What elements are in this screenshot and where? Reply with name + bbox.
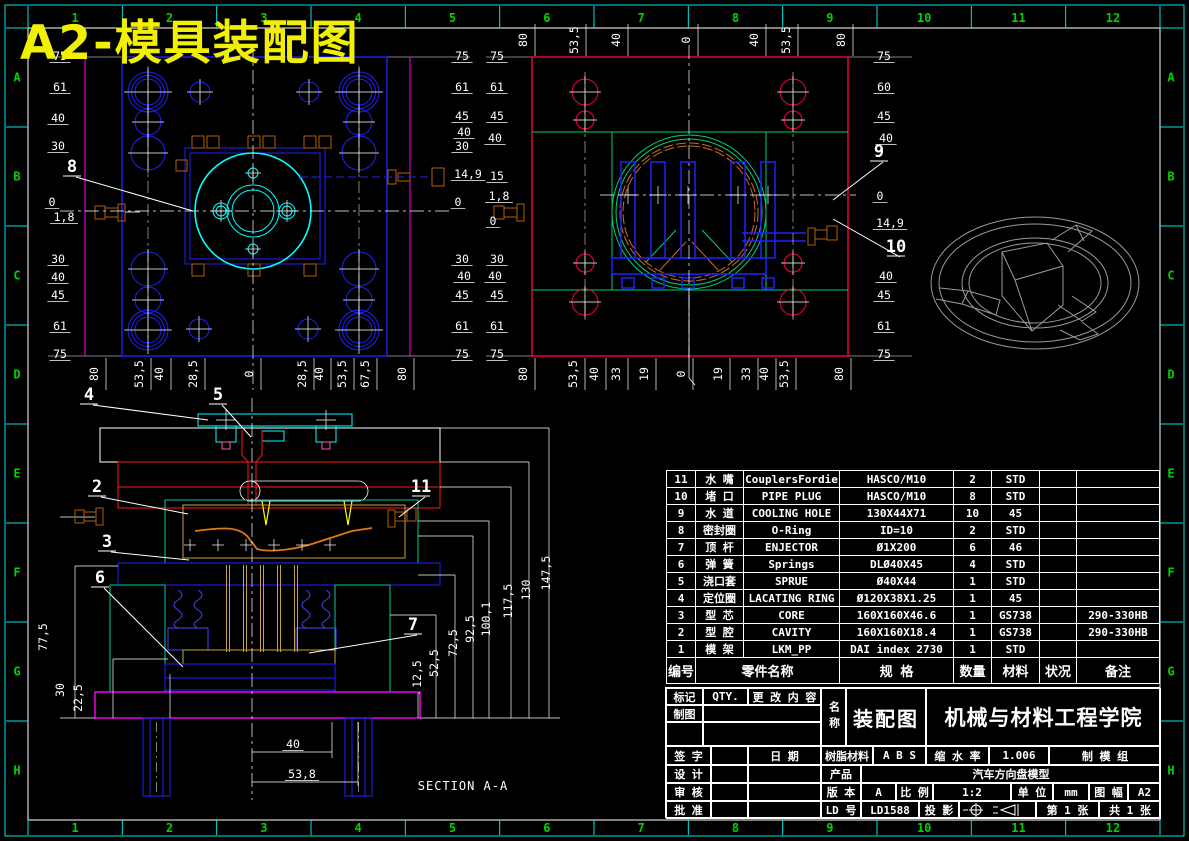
svg-text:8: 8	[732, 11, 739, 25]
bom-cell	[1040, 539, 1077, 556]
projection-symbols	[959, 801, 1036, 819]
svg-text:7: 7	[408, 615, 418, 635]
bom-row: 6弹 簧SpringsDLØ40X454STD	[667, 556, 1160, 573]
svg-text:75: 75	[877, 347, 891, 361]
bom-cell	[1077, 522, 1160, 539]
ld-label: LD 号	[821, 801, 861, 819]
mark-label: 标记	[666, 688, 703, 705]
bom-cell: 2	[954, 522, 992, 539]
svg-text:0: 0	[679, 36, 693, 43]
bom-cell: 1	[954, 624, 992, 641]
svg-text:5: 5	[449, 821, 456, 835]
bom-cell: 1	[667, 641, 696, 658]
svg-text:53,5: 53,5	[132, 360, 146, 388]
bom-row: 2型 腔CAVITY160X160X18.41GS738290-330HB	[667, 624, 1160, 641]
product-value: 汽车方向盘模型	[861, 765, 1161, 783]
bom-cell: 1	[954, 607, 992, 624]
svg-text:9: 9	[826, 11, 833, 25]
bom-cell: 290-330HB	[1077, 624, 1160, 641]
svg-text:30: 30	[53, 683, 67, 697]
blank-cell	[748, 765, 821, 783]
title-block: 标记 QTY. 更 改 内 容 制图 名称 装配图 机械与材料工程学院 签 字 …	[665, 687, 1160, 818]
svg-text:75: 75	[455, 347, 469, 361]
svg-text:28,5: 28,5	[186, 360, 200, 388]
sheet-total: 共 1 张	[1099, 801, 1161, 819]
bom-cell: GS738	[992, 624, 1040, 641]
svg-text:80: 80	[87, 367, 101, 381]
bom-cell: GS738	[992, 607, 1040, 624]
bom-cell: 弹 簧	[696, 556, 744, 573]
change-label: 更 改 内 容	[748, 688, 821, 705]
svg-text:8: 8	[732, 821, 739, 835]
bom-cell: 7	[667, 539, 696, 556]
svg-text:53,5: 53,5	[777, 360, 791, 388]
bom-cell: 顶 杆	[696, 539, 744, 556]
bom-cell: CAVITY	[744, 624, 840, 641]
bom-cell	[1077, 641, 1160, 658]
bom-header-cell: 备注	[1077, 658, 1160, 684]
svg-text:61: 61	[455, 319, 469, 333]
bom-cell	[1077, 590, 1160, 607]
svg-text:3: 3	[102, 532, 112, 552]
svg-text:53,5: 53,5	[566, 360, 580, 388]
bom-cell: 290-330HB	[1077, 607, 1160, 624]
svg-text:77,5: 77,5	[36, 623, 50, 651]
bom-cell: 9	[667, 505, 696, 522]
view-plan-top-right	[486, 45, 912, 385]
bom-cell: 4	[954, 556, 992, 573]
svg-text:80: 80	[832, 367, 846, 381]
svg-text:45: 45	[490, 109, 504, 123]
svg-text:147,5: 147,5	[539, 556, 553, 591]
svg-text:40: 40	[488, 269, 502, 283]
svg-text:60: 60	[877, 80, 891, 94]
svg-text:61: 61	[877, 319, 891, 333]
bom-cell	[1077, 539, 1160, 556]
resin-value: A B S	[873, 746, 926, 765]
svg-text:61: 61	[490, 80, 504, 94]
svg-text:5: 5	[449, 11, 456, 25]
bom-row: 8密封圈O-RingID=102STD	[667, 522, 1160, 539]
svg-text:F: F	[1167, 566, 1174, 580]
bom-cell	[1040, 641, 1077, 658]
svg-text:15: 15	[490, 169, 504, 183]
svg-text:0: 0	[455, 195, 462, 209]
resin-label: 树脂材料	[821, 746, 873, 765]
svg-text:0: 0	[490, 214, 497, 228]
svg-text:6: 6	[543, 821, 550, 835]
draft-value	[703, 705, 821, 722]
blank-cell	[711, 765, 748, 783]
bom-cell: CouplersFordie	[744, 471, 840, 488]
svg-text:8: 8	[67, 157, 77, 177]
svg-text:75: 75	[490, 49, 504, 63]
bom-cell	[1040, 522, 1077, 539]
version-label: 版 本	[821, 783, 861, 801]
svg-text:H: H	[13, 764, 20, 778]
unit-value: mm	[1053, 783, 1089, 801]
ld-value: LD1588	[861, 801, 919, 819]
sheet-number: 第 1 张	[1036, 801, 1099, 819]
svg-text:G: G	[1167, 665, 1174, 679]
bom-cell: DAI index 2730	[840, 641, 954, 658]
draft-label: 制图	[666, 705, 703, 722]
svg-text:B: B	[1167, 170, 1174, 184]
svg-text:0: 0	[242, 370, 256, 377]
svg-text:40: 40	[312, 367, 326, 381]
bom-cell: PIPE PLUG	[744, 488, 840, 505]
svg-text:40: 40	[457, 269, 471, 283]
bom-cell: 2	[954, 471, 992, 488]
svg-text:40: 40	[757, 367, 771, 381]
bom-cell: ENJECTOR	[744, 539, 840, 556]
blank-cell	[748, 801, 821, 819]
svg-text:11: 11	[1011, 821, 1025, 835]
blank-cell	[703, 722, 821, 746]
svg-text:2: 2	[92, 477, 102, 497]
svg-text:52,5: 52,5	[427, 649, 441, 677]
bom-cell: DLØ40X45	[840, 556, 954, 573]
svg-text:1: 1	[72, 821, 79, 835]
bom-cell: 浇口套	[696, 573, 744, 590]
svg-text:11: 11	[411, 477, 431, 497]
svg-text:30: 30	[51, 252, 65, 266]
bom-cell: 1	[954, 573, 992, 590]
svg-text:H: H	[1167, 764, 1174, 778]
qty-label: QTY.	[703, 688, 748, 705]
bom-cell: 模 架	[696, 641, 744, 658]
svg-text:53,5: 53,5	[779, 26, 793, 54]
svg-text:45: 45	[877, 109, 891, 123]
bom-header-cell: 编号	[667, 658, 696, 684]
svg-text:30: 30	[51, 139, 65, 153]
svg-text:22,5: 22,5	[71, 684, 85, 712]
svg-text:130: 130	[519, 580, 533, 601]
section-view	[60, 398, 560, 800]
shrink-value: 1.006	[989, 746, 1049, 765]
bom-cell: STD	[992, 573, 1040, 590]
mold-group-label: 制 模 组	[1049, 746, 1161, 765]
bom-header-cell: 材料	[992, 658, 1040, 684]
svg-text:0: 0	[49, 195, 56, 209]
bom-cell	[1077, 556, 1160, 573]
bom-cell	[1077, 471, 1160, 488]
organization-name: 机械与材料工程学院	[926, 688, 1161, 746]
svg-text:40: 40	[747, 33, 761, 47]
svg-text:40: 40	[879, 269, 893, 283]
svg-text:40: 40	[51, 270, 65, 284]
svg-text:7: 7	[638, 821, 645, 835]
svg-text:45: 45	[490, 288, 504, 302]
bom-cell	[1040, 556, 1077, 573]
scale-value: 1:2	[933, 783, 1011, 801]
svg-text:14,9: 14,9	[876, 216, 904, 230]
bom-cell: 1	[954, 641, 992, 658]
svg-text:40: 40	[457, 125, 471, 139]
bom-header-cell: 规 格	[840, 658, 954, 684]
steering-wheel-3d-view	[931, 217, 1139, 349]
bom-row: 7顶 杆ENJECTORØ1X200646	[667, 539, 1160, 556]
svg-text:45: 45	[877, 288, 891, 302]
bom-cell	[1077, 488, 1160, 505]
svg-text:12: 12	[1106, 821, 1120, 835]
name-label: 名称	[821, 688, 846, 746]
svg-text:72,5: 72,5	[446, 629, 460, 657]
bom-cell: Ø120X38X1.25	[840, 590, 954, 607]
svg-text:10: 10	[917, 821, 931, 835]
bom-cell: 水 道	[696, 505, 744, 522]
bom-cell: 160X160X46.6	[840, 607, 954, 624]
svg-text:75: 75	[53, 347, 67, 361]
svg-text:D: D	[13, 368, 20, 382]
bom-cell: 型 芯	[696, 607, 744, 624]
svg-text:F: F	[13, 566, 20, 580]
svg-text:61: 61	[455, 80, 469, 94]
svg-text:B: B	[13, 170, 20, 184]
svg-text:61: 61	[490, 319, 504, 333]
date-label: 日 期	[748, 746, 821, 765]
bom-cell: 46	[992, 539, 1040, 556]
svg-text:A: A	[1167, 71, 1175, 85]
bom-cell: Ø40X44	[840, 573, 954, 590]
svg-text:33: 33	[609, 367, 623, 381]
blank-cell	[748, 783, 821, 801]
svg-text:40: 40	[609, 33, 623, 47]
bom-cell: 10	[667, 488, 696, 505]
format-label: 图 幅	[1089, 783, 1128, 801]
svg-text:40: 40	[152, 367, 166, 381]
svg-text:10: 10	[917, 11, 931, 25]
bom-cell: 型 腔	[696, 624, 744, 641]
parts-list-table: 11水 嘴CouplersFordieHASCO/M102STD10堵 口PIP…	[666, 470, 1159, 684]
bom-cell: 2	[667, 624, 696, 641]
svg-text:0: 0	[877, 189, 884, 203]
unit-label: 单 位	[1011, 783, 1053, 801]
drawing-name: 装配图	[846, 688, 926, 746]
svg-text:67,5: 67,5	[358, 360, 372, 388]
shrink-label: 缩 水 率	[926, 746, 989, 765]
svg-text:80: 80	[516, 33, 530, 47]
bom-cell	[1077, 505, 1160, 522]
bom-cell: LKM_PP	[744, 641, 840, 658]
bom-cell	[1040, 624, 1077, 641]
svg-text:80: 80	[516, 367, 530, 381]
svg-text:40: 40	[587, 367, 601, 381]
bom-row: 5浇口套SPRUEØ40X441STD	[667, 573, 1160, 590]
svg-text:9: 9	[826, 821, 833, 835]
bom-row: 3型 芯CORE160X160X46.61GS738290-330HB	[667, 607, 1160, 624]
bom-cell: Springs	[744, 556, 840, 573]
bom-cell: 1	[954, 590, 992, 607]
blank-cell	[711, 801, 748, 819]
svg-text:0: 0	[674, 370, 688, 377]
bom-cell: 水 嘴	[696, 471, 744, 488]
bom-row: 1模 架LKM_PPDAI index 27301STD	[667, 641, 1160, 658]
first-angle-projection-icon	[963, 803, 1033, 817]
bom-cell: 6	[667, 556, 696, 573]
svg-text:28,5: 28,5	[295, 360, 309, 388]
bom-header-cell: 状况	[1040, 658, 1077, 684]
svg-text:7: 7	[638, 11, 645, 25]
svg-text:D: D	[1167, 368, 1174, 382]
svg-text:45: 45	[455, 288, 469, 302]
svg-text:53,5: 53,5	[335, 360, 349, 388]
bom-cell	[1040, 505, 1077, 522]
bom-header-row: 编号零件名称规 格数量材料状况备注	[667, 658, 1160, 684]
svg-text:C: C	[13, 269, 20, 283]
svg-text:80: 80	[395, 367, 409, 381]
svg-text:40: 40	[488, 131, 502, 145]
format-value: A2	[1128, 783, 1161, 801]
svg-text:33: 33	[739, 367, 753, 381]
bom-cell: 10	[954, 505, 992, 522]
bom-cell	[1077, 573, 1160, 590]
check-label: 审 核	[666, 783, 711, 801]
sheet-title: A2-模具装配图	[20, 4, 360, 73]
projection-label: 投 影	[919, 801, 959, 819]
bom-cell: COOLING HOLE	[744, 505, 840, 522]
svg-text:14,9: 14,9	[454, 167, 482, 181]
svg-text:40: 40	[51, 111, 65, 125]
svg-text:6: 6	[543, 11, 550, 25]
bom-cell: 定位圈	[696, 590, 744, 607]
svg-text:4: 4	[84, 385, 94, 405]
bom-cell: STD	[992, 556, 1040, 573]
design-label: 设 计	[666, 765, 711, 783]
blank-cell	[666, 722, 703, 746]
svg-text:75: 75	[490, 347, 504, 361]
svg-text:53,8: 53,8	[288, 767, 316, 781]
bom-cell	[1040, 471, 1077, 488]
bom-cell: 4	[667, 590, 696, 607]
bom-cell: HASCO/M10	[840, 471, 954, 488]
svg-text:12,5: 12,5	[410, 660, 424, 688]
view-plan-top-left	[48, 45, 470, 390]
bom-header-cell: 零件名称	[696, 658, 840, 684]
bom-cell: Ø1X200	[840, 539, 954, 556]
bom-cell: 160X160X18.4	[840, 624, 954, 641]
cad-sheet: 112233445566778899101011111212AABBCCDDEE…	[0, 0, 1189, 841]
approve-label: 批 准	[666, 801, 711, 819]
bom-cell: 3	[667, 607, 696, 624]
bom-cell: 8	[667, 522, 696, 539]
scale-label: 比 例	[896, 783, 933, 801]
bom-cell: SPRUE	[744, 573, 840, 590]
bom-cell	[1040, 573, 1077, 590]
svg-text:1,8: 1,8	[54, 210, 75, 224]
bom-cell: 密封圈	[696, 522, 744, 539]
bom-cell: 130X44X71	[840, 505, 954, 522]
svg-text:100,1: 100,1	[479, 602, 493, 637]
svg-text:117,5: 117,5	[501, 584, 515, 619]
svg-text:9: 9	[874, 142, 884, 162]
bom-cell	[1040, 488, 1077, 505]
svg-text:10: 10	[886, 237, 906, 257]
bom-row: 9水 道COOLING HOLE130X44X711045	[667, 505, 1160, 522]
svg-text:5: 5	[213, 385, 223, 405]
svg-text:75: 75	[455, 49, 469, 63]
bom-cell: CORE	[744, 607, 840, 624]
svg-text:40: 40	[286, 737, 300, 751]
bom-cell: 8	[954, 488, 992, 505]
blank-cell	[711, 783, 748, 801]
svg-text:30: 30	[455, 139, 469, 153]
bom-row: 11水 嘴CouplersFordieHASCO/M102STD	[667, 471, 1160, 488]
bom-cell: 11	[667, 471, 696, 488]
blank-cell	[711, 746, 748, 765]
bom-cell	[1040, 607, 1077, 624]
bom-cell: LACATING RING	[744, 590, 840, 607]
bom-cell: 5	[667, 573, 696, 590]
bom-cell: STD	[992, 641, 1040, 658]
svg-text:11: 11	[1011, 11, 1025, 25]
svg-text:E: E	[1167, 467, 1174, 481]
bom-cell: 45	[992, 505, 1040, 522]
svg-text:45: 45	[51, 288, 65, 302]
bom-cell	[1040, 590, 1077, 607]
svg-text:C: C	[1167, 269, 1174, 283]
bom-cell: STD	[992, 471, 1040, 488]
svg-text:E: E	[13, 467, 20, 481]
svg-text:19: 19	[711, 367, 725, 381]
svg-text:53,5: 53,5	[567, 26, 581, 54]
section-label: SECTION A-A	[393, 779, 533, 793]
bom-cell: STD	[992, 522, 1040, 539]
svg-text:4: 4	[355, 821, 362, 835]
bom-cell: 6	[954, 539, 992, 556]
bom-header-cell: 数量	[954, 658, 992, 684]
product-label: 产品	[821, 765, 861, 783]
svg-text:61: 61	[53, 80, 67, 94]
svg-text:61: 61	[53, 319, 67, 333]
svg-text:30: 30	[455, 252, 469, 266]
svg-text:75: 75	[877, 49, 891, 63]
svg-text:19: 19	[637, 367, 651, 381]
svg-text:1,8: 1,8	[489, 189, 510, 203]
svg-text:80: 80	[834, 33, 848, 47]
svg-text:2: 2	[166, 821, 173, 835]
svg-text:30: 30	[490, 252, 504, 266]
bom-cell: 45	[992, 590, 1040, 607]
bom-cell: ID=10	[840, 522, 954, 539]
svg-text:6: 6	[95, 568, 105, 588]
bom-row: 10堵 口PIPE PLUGHASCO/M108STD	[667, 488, 1160, 505]
bom-cell: STD	[992, 488, 1040, 505]
bom-cell: O-Ring	[744, 522, 840, 539]
version-value: A	[861, 783, 896, 801]
svg-text:G: G	[13, 665, 20, 679]
bom-cell: 堵 口	[696, 488, 744, 505]
sign-label: 签 字	[666, 746, 711, 765]
bom-cell: HASCO/M10	[840, 488, 954, 505]
svg-text:45: 45	[455, 109, 469, 123]
svg-text:12: 12	[1106, 11, 1120, 25]
svg-text:92,5: 92,5	[463, 615, 477, 643]
svg-text:3: 3	[260, 821, 267, 835]
bom-row: 4定位圈LACATING RINGØ120X38X1.25145	[667, 590, 1160, 607]
